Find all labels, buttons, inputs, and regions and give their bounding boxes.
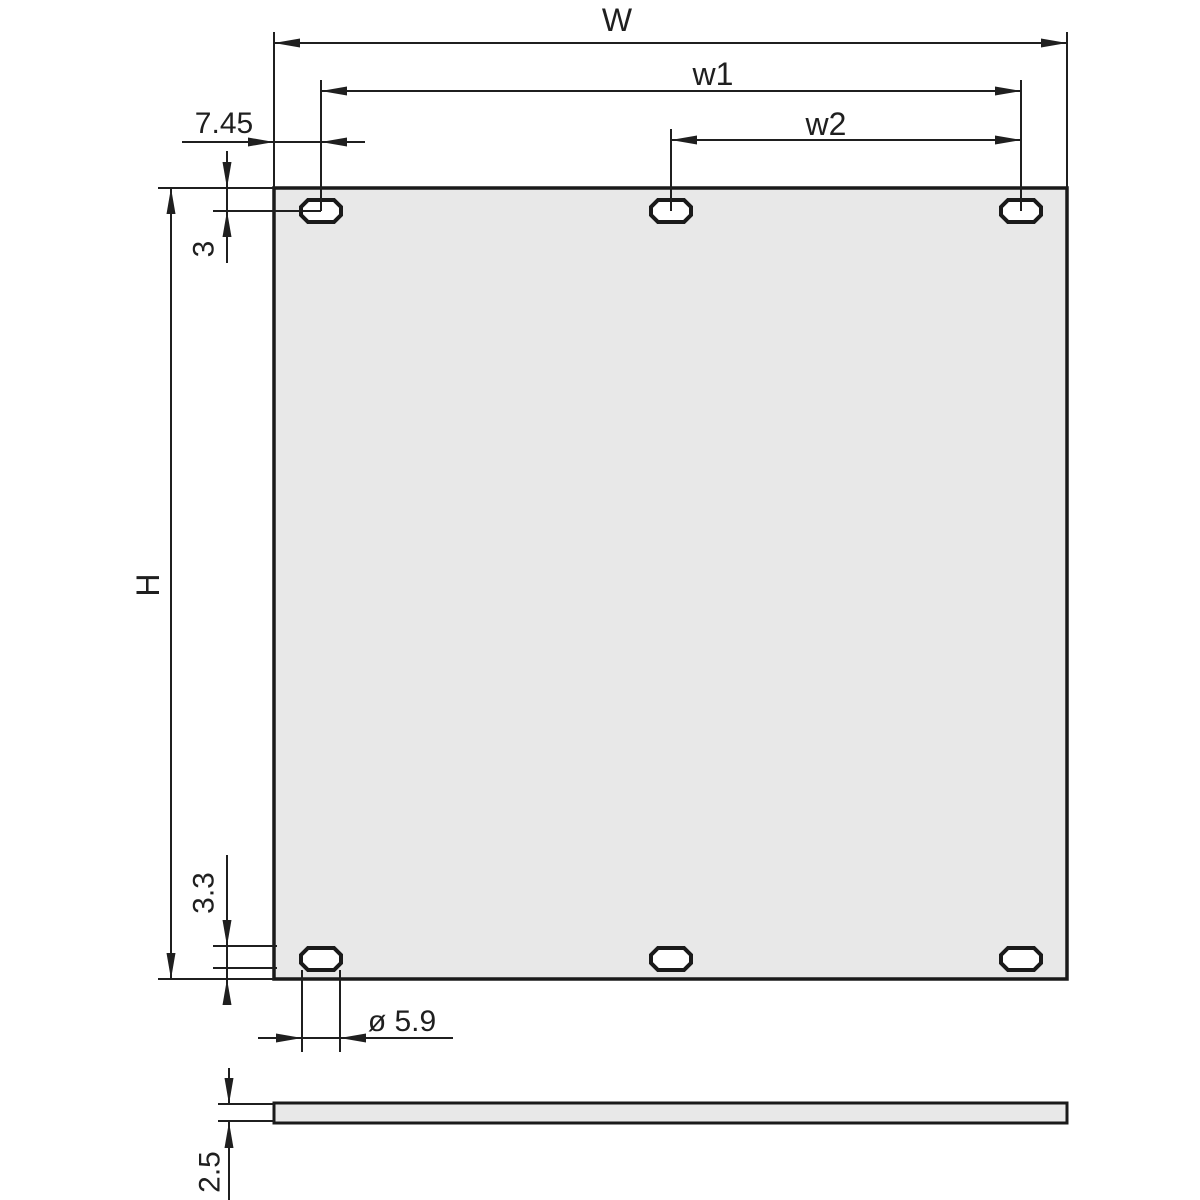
- arrowhead-3-3-top: [223, 920, 232, 946]
- dim-label-7-45: 7.45: [195, 107, 253, 140]
- arrowhead-2-5-top: [225, 1078, 234, 1104]
- dim-label-2-5: 2.5: [194, 1151, 227, 1193]
- mounting-slot-bottom-center: [651, 948, 691, 970]
- dim-label-W: W: [602, 2, 633, 38]
- dim-label-diameter: ø 5.9: [368, 1005, 436, 1038]
- arrowhead-H-bottom: [167, 953, 176, 979]
- arrowhead-W-right: [1041, 39, 1067, 48]
- dim-label-w2: w2: [805, 106, 847, 142]
- technical-drawing: W w1 w2 7.45 3 H 3.3 ø 5.9 2.5: [0, 0, 1200, 1200]
- arrowhead-7-45-right: [321, 138, 347, 147]
- arrowhead-diameter-right: [340, 1034, 366, 1043]
- arrowhead-3-top: [223, 162, 232, 188]
- dim-label-w1: w1: [692, 56, 734, 92]
- arrowhead-2-5-bottom: [225, 1122, 234, 1148]
- arrowhead-W-left: [274, 39, 300, 48]
- mounting-slot-bottom-left: [301, 948, 341, 970]
- dim-label-3-3: 3.3: [188, 872, 221, 914]
- dim-label-3: 3: [188, 241, 221, 258]
- side-view-panel: [274, 1103, 1067, 1123]
- front-view-panel: [274, 188, 1067, 979]
- arrowhead-diameter-left: [276, 1034, 302, 1043]
- drawing-canvas: W w1 w2 7.45 3 H 3.3 ø 5.9 2.5: [0, 0, 1200, 1200]
- arrowhead-w2-right: [995, 136, 1021, 145]
- arrowhead-H-top: [167, 188, 176, 214]
- mounting-slot-bottom-right: [1001, 948, 1041, 970]
- arrowhead-3-3-bottom: [223, 979, 232, 1005]
- arrowhead-w2-left: [671, 136, 697, 145]
- dim-label-H: H: [130, 573, 166, 596]
- arrowhead-3-bottom: [223, 211, 232, 237]
- arrowhead-w1-right: [995, 87, 1021, 96]
- arrowhead-w1-left: [321, 87, 347, 96]
